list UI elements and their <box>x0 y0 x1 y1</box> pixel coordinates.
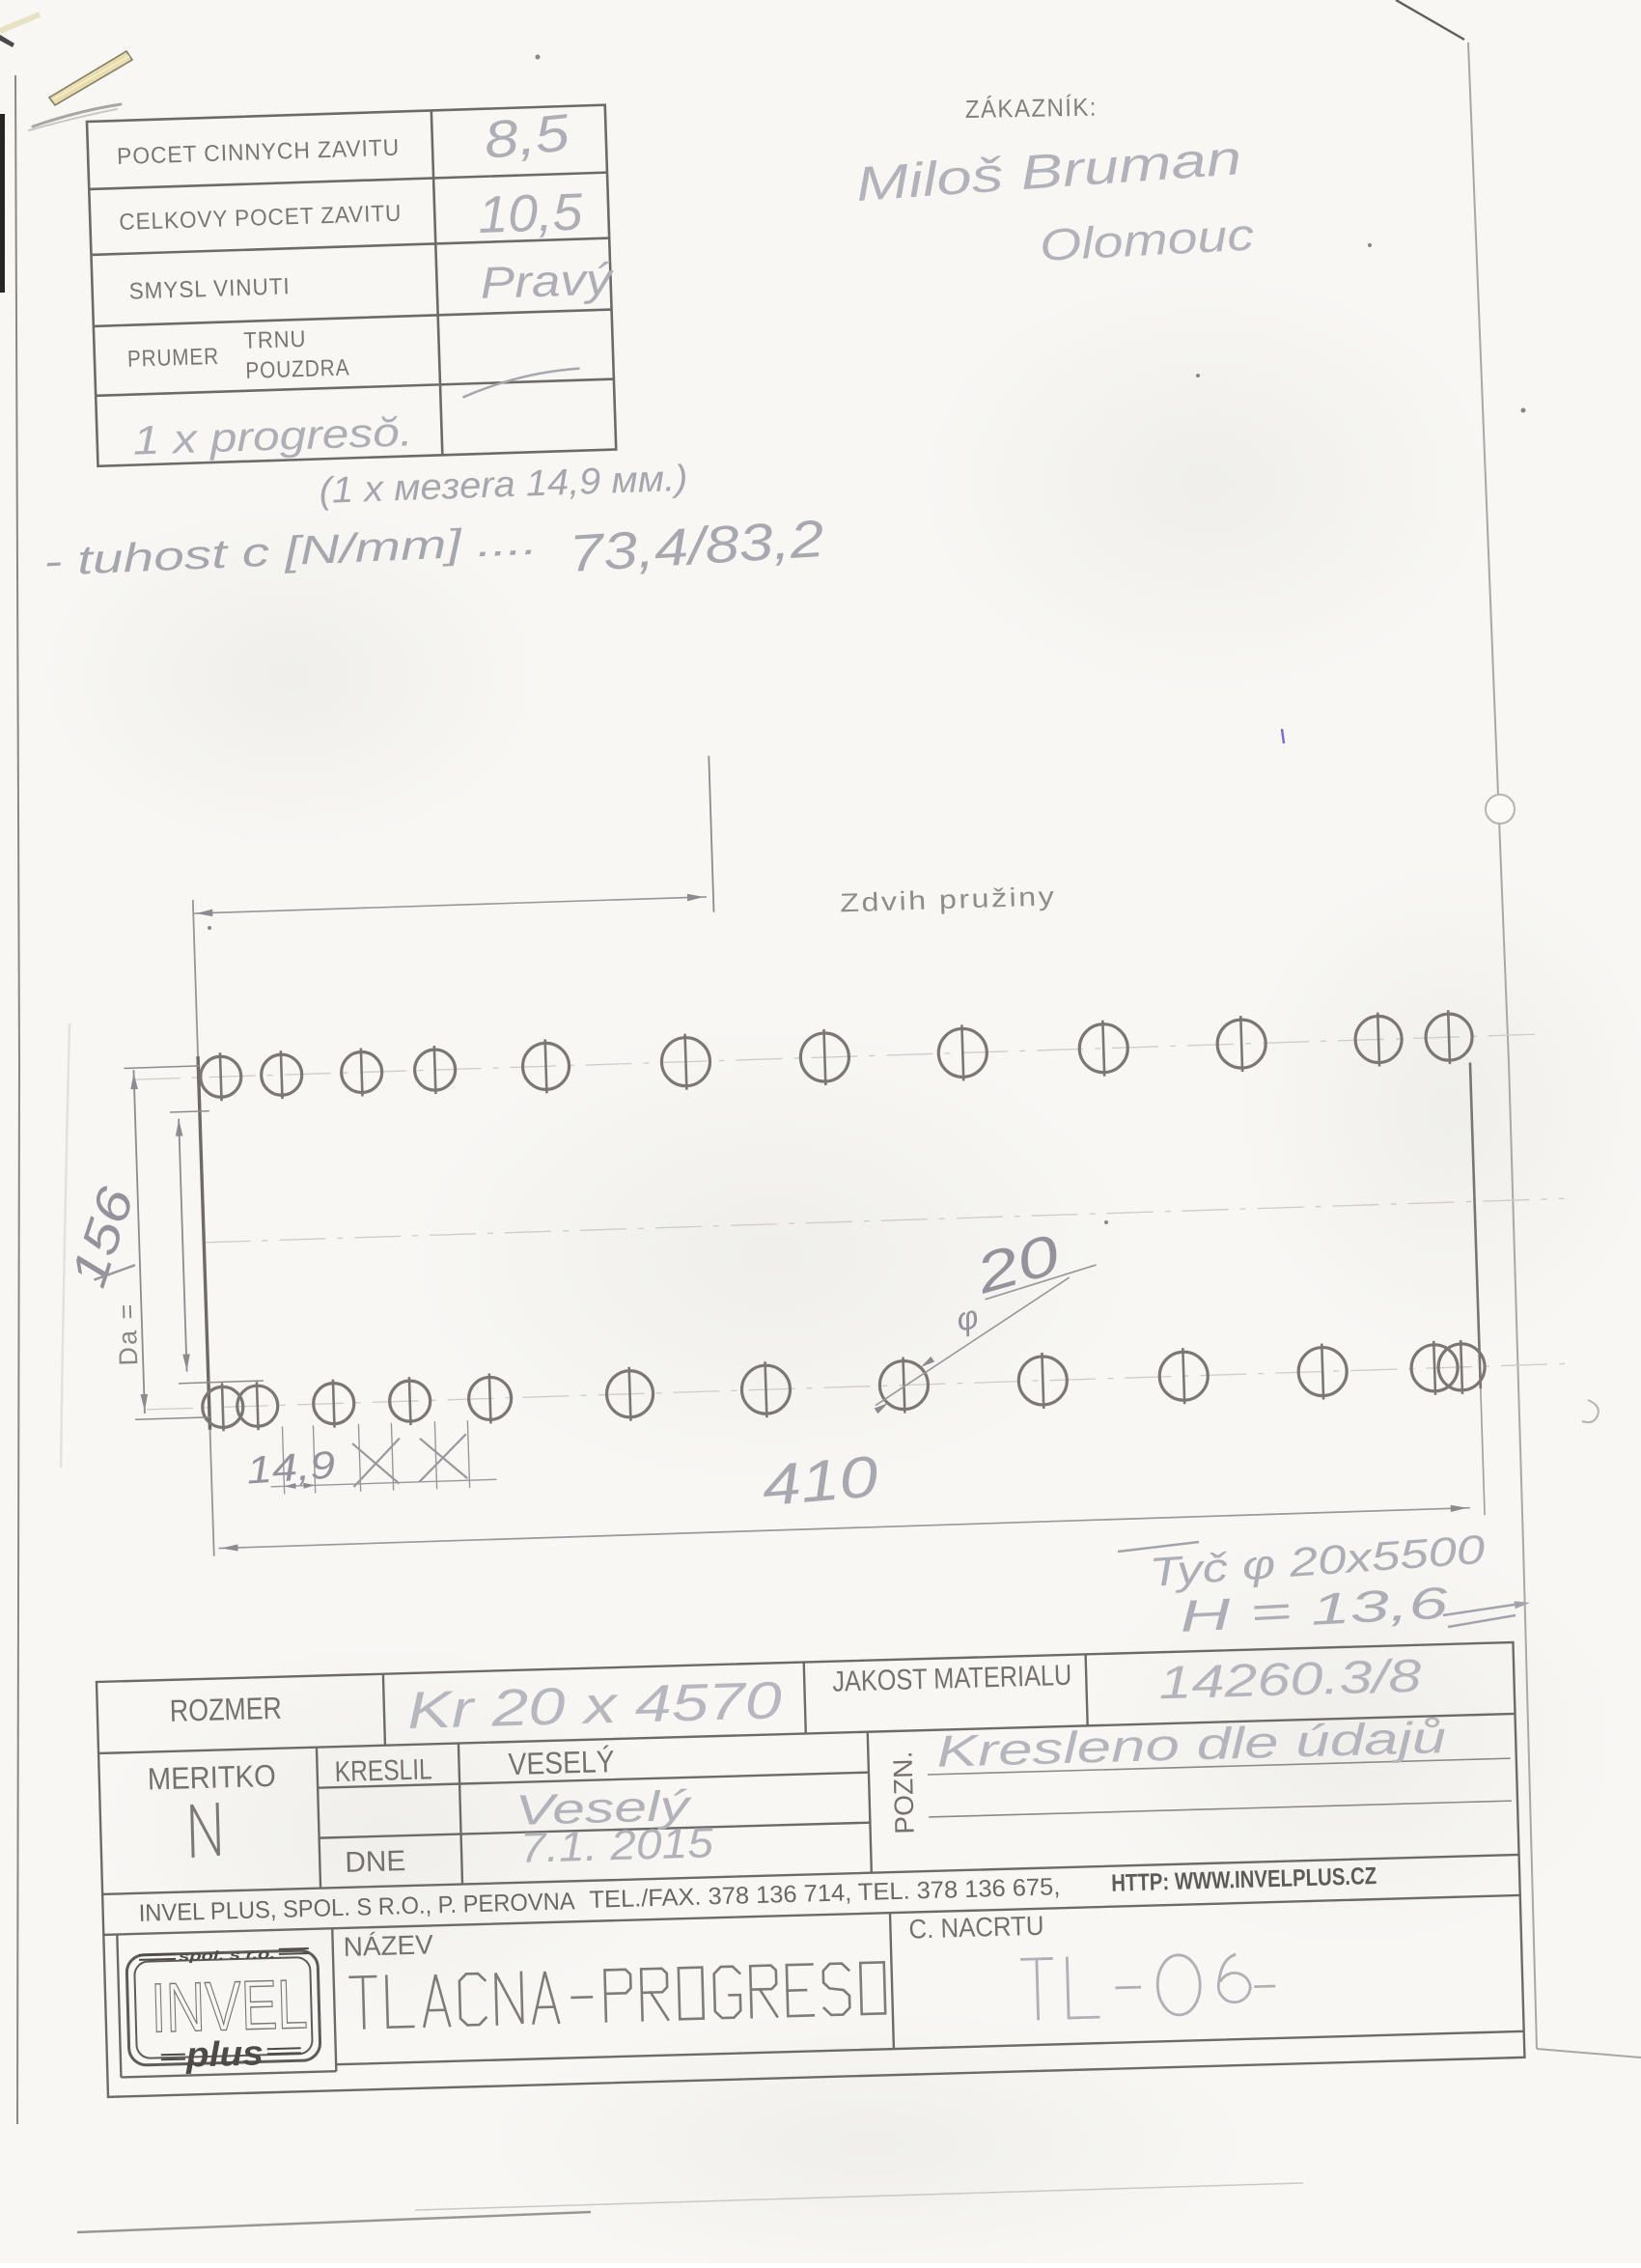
svg-text:NÁZEV: NÁZEV <box>343 1929 433 1962</box>
svg-text:MERITKO: MERITKO <box>147 1758 276 1797</box>
svg-text:spol. s r.o.: spol. s r.o. <box>179 1946 275 1964</box>
svg-text:TRNU: TRNU <box>243 326 307 354</box>
svg-text:1 x progresŏ.: 1 x progresŏ. <box>132 408 413 462</box>
svg-text:14,9: 14,9 <box>245 1443 337 1492</box>
svg-text:10,5: 10,5 <box>477 182 584 243</box>
svg-text:8,5: 8,5 <box>482 103 573 170</box>
svg-text:Da =: Da = <box>112 1302 143 1366</box>
svg-text:plus: plus <box>184 2032 264 2074</box>
svg-text:VESELÝ: VESELÝ <box>508 1744 615 1781</box>
svg-text:DNE: DNE <box>345 1845 406 1879</box>
svg-text:Kr 20 x 4570: Kr 20 x 4570 <box>406 1671 783 1740</box>
svg-text:ROZMER: ROZMER <box>169 1691 282 1728</box>
svg-text:14260.3/8: 14260.3/8 <box>1158 1651 1423 1710</box>
svg-text:ZÁKAZNÍK:: ZÁKAZNÍK: <box>965 93 1099 124</box>
svg-text:POUZDRA: POUZDRA <box>245 354 350 383</box>
svg-text:7.1. 2015: 7.1. 2015 <box>519 1819 714 1872</box>
svg-text:C. NACRTU: C. NACRTU <box>908 1911 1044 1945</box>
svg-text:JAKOST MATERIALU: JAKOST MATERIALU <box>832 1660 1072 1698</box>
svg-text:PRUMER: PRUMER <box>127 344 220 373</box>
svg-text:410: 410 <box>760 1443 880 1518</box>
svg-text:Pravý: Pravý <box>480 253 616 307</box>
svg-text:POZN.: POZN. <box>887 1750 919 1834</box>
svg-text:SMYSL VINUTI: SMYSL VINUTI <box>128 273 291 304</box>
svg-text:KRESLIL: KRESLIL <box>334 1753 432 1788</box>
